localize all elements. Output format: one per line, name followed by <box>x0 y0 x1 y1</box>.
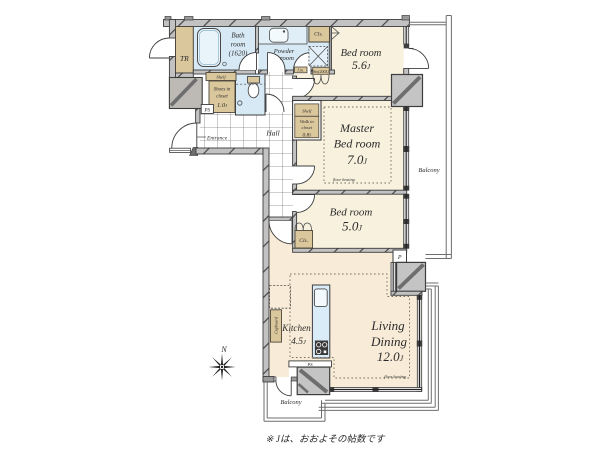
svg-text:Lin.: Lin. <box>296 68 304 73</box>
svg-text:4.5J: 4.5J <box>291 337 307 347</box>
svg-text:Bed room: Bed room <box>330 207 373 219</box>
svg-text:closet: closet <box>216 95 228 100</box>
svg-text:Walk in: Walk in <box>300 119 314 124</box>
svg-text:Living: Living <box>370 318 405 333</box>
svg-text:Cls.: Cls. <box>299 238 308 244</box>
svg-text:Bath: Bath <box>231 32 245 40</box>
svg-text:Dining: Dining <box>370 334 408 349</box>
svg-text:PS: PS <box>306 362 313 367</box>
svg-text:N: N <box>220 345 227 354</box>
svg-text:Balcony: Balcony <box>280 399 301 406</box>
svg-text:※ Jは、おおよその帖数です: ※ Jは、おおよその帖数です <box>265 434 386 445</box>
svg-text:closet: closet <box>301 125 312 130</box>
svg-text:Balcony: Balcony <box>418 167 439 174</box>
svg-text:floor heating: floor heating <box>384 374 406 379</box>
svg-text:(1620): (1620) <box>229 50 248 58</box>
svg-text:1.0J: 1.0J <box>217 102 228 109</box>
svg-text:room: room <box>280 55 294 62</box>
svg-text:P: P <box>397 255 402 261</box>
svg-text:Kitchen: Kitchen <box>281 323 311 333</box>
svg-text:Shelf: Shelf <box>302 109 312 114</box>
svg-text:Master: Master <box>339 121 374 135</box>
svg-text:Sto(200L): Sto(200L) <box>313 69 330 74</box>
svg-text:Powder: Powder <box>273 48 295 55</box>
svg-text:Cupboard: Cupboard <box>274 316 279 334</box>
svg-text:floor heating: floor heating <box>333 177 355 182</box>
svg-text:Shelf: Shelf <box>216 75 226 80</box>
svg-text:TR: TR <box>180 54 189 63</box>
svg-text:12.0J: 12.0J <box>377 349 404 364</box>
svg-text:Shoes in: Shoes in <box>214 88 231 93</box>
svg-text:Cls.: Cls. <box>314 32 323 38</box>
svg-text:Entrance: Entrance <box>206 136 228 142</box>
svg-text:PS: PS <box>204 109 211 114</box>
svg-text:Hall: Hall <box>265 129 279 138</box>
svg-text:Bed room: Bed room <box>334 137 381 151</box>
svg-text:room: room <box>231 41 246 49</box>
